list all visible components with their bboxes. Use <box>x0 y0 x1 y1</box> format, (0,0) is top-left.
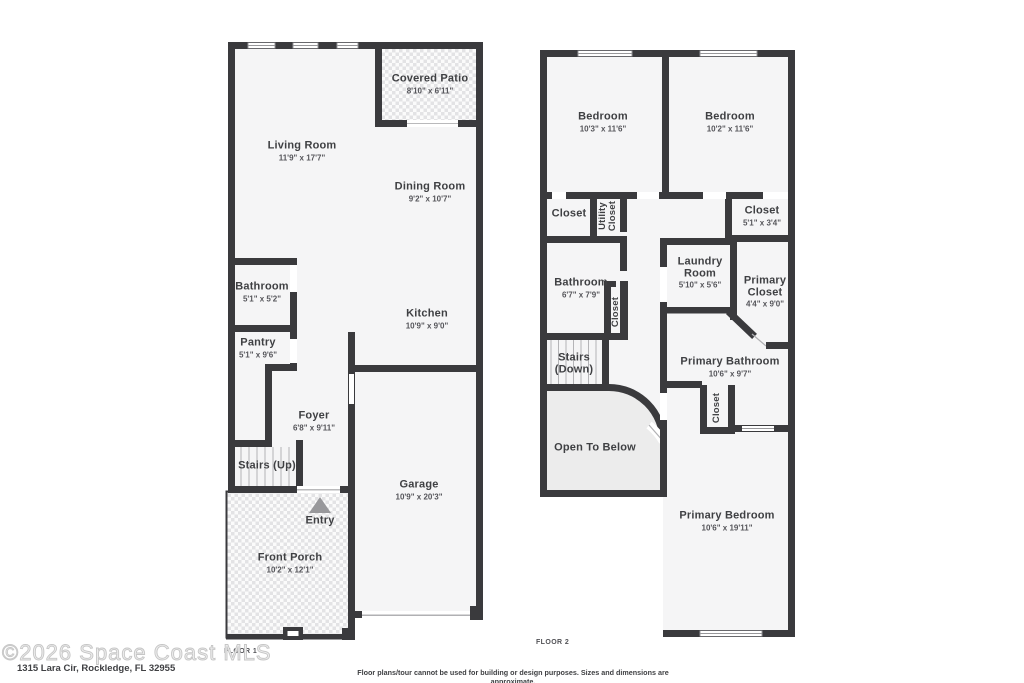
room-label-utility-closet: Utility Closet <box>598 195 618 237</box>
room-label-bedroom-closet: Closet <box>712 393 722 423</box>
window-icon <box>248 43 358 48</box>
room-label-primary-bedroom: Primary Bedroom 10'6" x 19'11" <box>679 510 774 532</box>
room-label-living-room: Living Room 11'9" x 17'7" <box>268 140 337 162</box>
room-label-stairs-up: Stairs (Up) <box>238 460 296 472</box>
disclaimer-text: Floor plans/tour cannot be used for buil… <box>352 668 674 683</box>
room-label-closet-left: Closet <box>552 208 587 220</box>
room-label-primary-closet: Primary Closet 4'4" x 9'0" <box>739 276 791 309</box>
floorplan-drawing <box>0 0 1024 683</box>
floor2-caption: FLOOR 2 <box>536 639 569 646</box>
room-label-front-porch: Front Porch 10'2" x 12'1" <box>258 552 323 574</box>
room-label-covered-patio: Covered Patio 8'10" x 6'11" <box>392 73 469 95</box>
room-label-foyer: Foyer 6'8" x 9'11" <box>293 410 335 432</box>
room-label-closet-right: Closet 5'1" x 3'4" <box>743 205 781 227</box>
room-label-bath-closet: Closet <box>611 297 621 327</box>
room-label-bathroom-f1: Bathroom 5'1" x 5'2" <box>235 281 289 303</box>
room-label-bathroom-f2: Bathroom 6'7" x 7'9" <box>554 277 608 299</box>
floor2-plan <box>540 50 795 637</box>
porch-stoop-icon <box>283 627 303 640</box>
room-label-dining-room: Dining Room 9'2" x 10'7" <box>395 181 466 203</box>
room-label-stairs-down: Stairs (Down) <box>549 353 599 376</box>
room-label-primary-bathroom: Primary Bathroom 10'6" x 9'7" <box>680 356 779 378</box>
entry-arrow-icon <box>309 497 331 513</box>
room-label-bedroom-left: Bedroom 10'3" x 11'6" <box>578 111 628 133</box>
room-label-pantry: Pantry 5'1" x 9'6" <box>239 337 277 359</box>
floorplan-canvas: Covered Patio 8'10" x 6'11" Living Room … <box>0 0 1024 683</box>
room-label-garage: Garage 10'9" x 20'3" <box>396 479 443 501</box>
room-label-kitchen: Kitchen 10'9" x 9'0" <box>406 308 449 330</box>
room-label-bedroom-right: Bedroom 10'2" x 11'6" <box>705 111 755 133</box>
room-label-entry: Entry <box>305 515 334 527</box>
property-address: 1315 Lara Cir, Rockledge, FL 32955 <box>17 663 175 674</box>
room-label-laundry-room: Laundry Room 5'10" x 5'6" <box>672 257 728 290</box>
room-label-open-to-below: Open To Below <box>554 442 636 454</box>
